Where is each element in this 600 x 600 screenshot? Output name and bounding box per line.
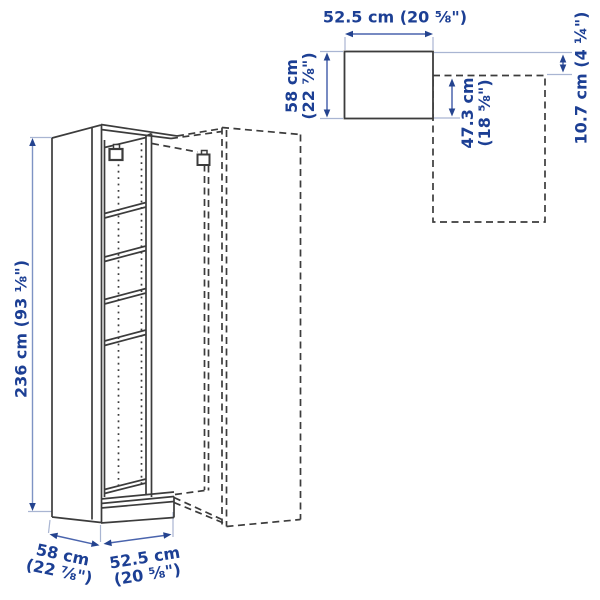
shelf-line [105,203,147,219]
hinge-icon [198,155,210,166]
shelf-line [105,289,147,305]
top-view-depth-label: 58 cm (22 ⅞") [283,52,317,119]
dashed-base-edge [174,498,222,520]
bottom-panel-lines [105,479,147,494]
shelf-line [105,330,147,346]
corner-offset-label: 10.7 cm (4 ¼") [573,12,590,145]
door-top-edge [152,144,198,153]
frame-bottom-left-edge [52,517,101,523]
top-view-frame-rect [345,52,434,119]
top-view-depth-line2: (22 ⅞") [300,52,317,119]
drill-hole-rows [119,143,142,489]
door-bottom-edge [175,491,205,495]
hinge-icon [110,149,123,160]
top-view-width-label: 52.5 cm (20 ⅝") [323,9,467,26]
top-view-depth-line1: 58 cm [283,52,300,119]
top-view-diagram [345,52,546,223]
wardrobe-frame [52,125,177,524]
frame-top-left-edge [52,125,101,138]
plinth-bottom-edge [101,518,174,524]
corner-inner-depth-line1: 47.3 cm [459,77,476,148]
dashed-door-and-frame-outline [152,128,301,527]
height-dimension-label: 236 cm (93 ⅛") [13,260,30,398]
dashed-frame-bottom-edge [227,520,301,527]
corner-inner-depth-label: 47.3 cm (18 ⅝") [459,77,493,148]
interior-top-edge [105,138,147,148]
hinge-icons [110,145,210,166]
shelf-line [105,246,147,262]
product-dimension-illustration: 52.5 cm (20 ⅝") 58 cm (22 ⅞") 47.3 cm (1… [0,0,600,600]
corner-inner-depth-line2: (18 ⅝") [476,77,493,148]
dashed-frame-top-edge [222,128,301,135]
dashed-base-edge [174,503,226,525]
